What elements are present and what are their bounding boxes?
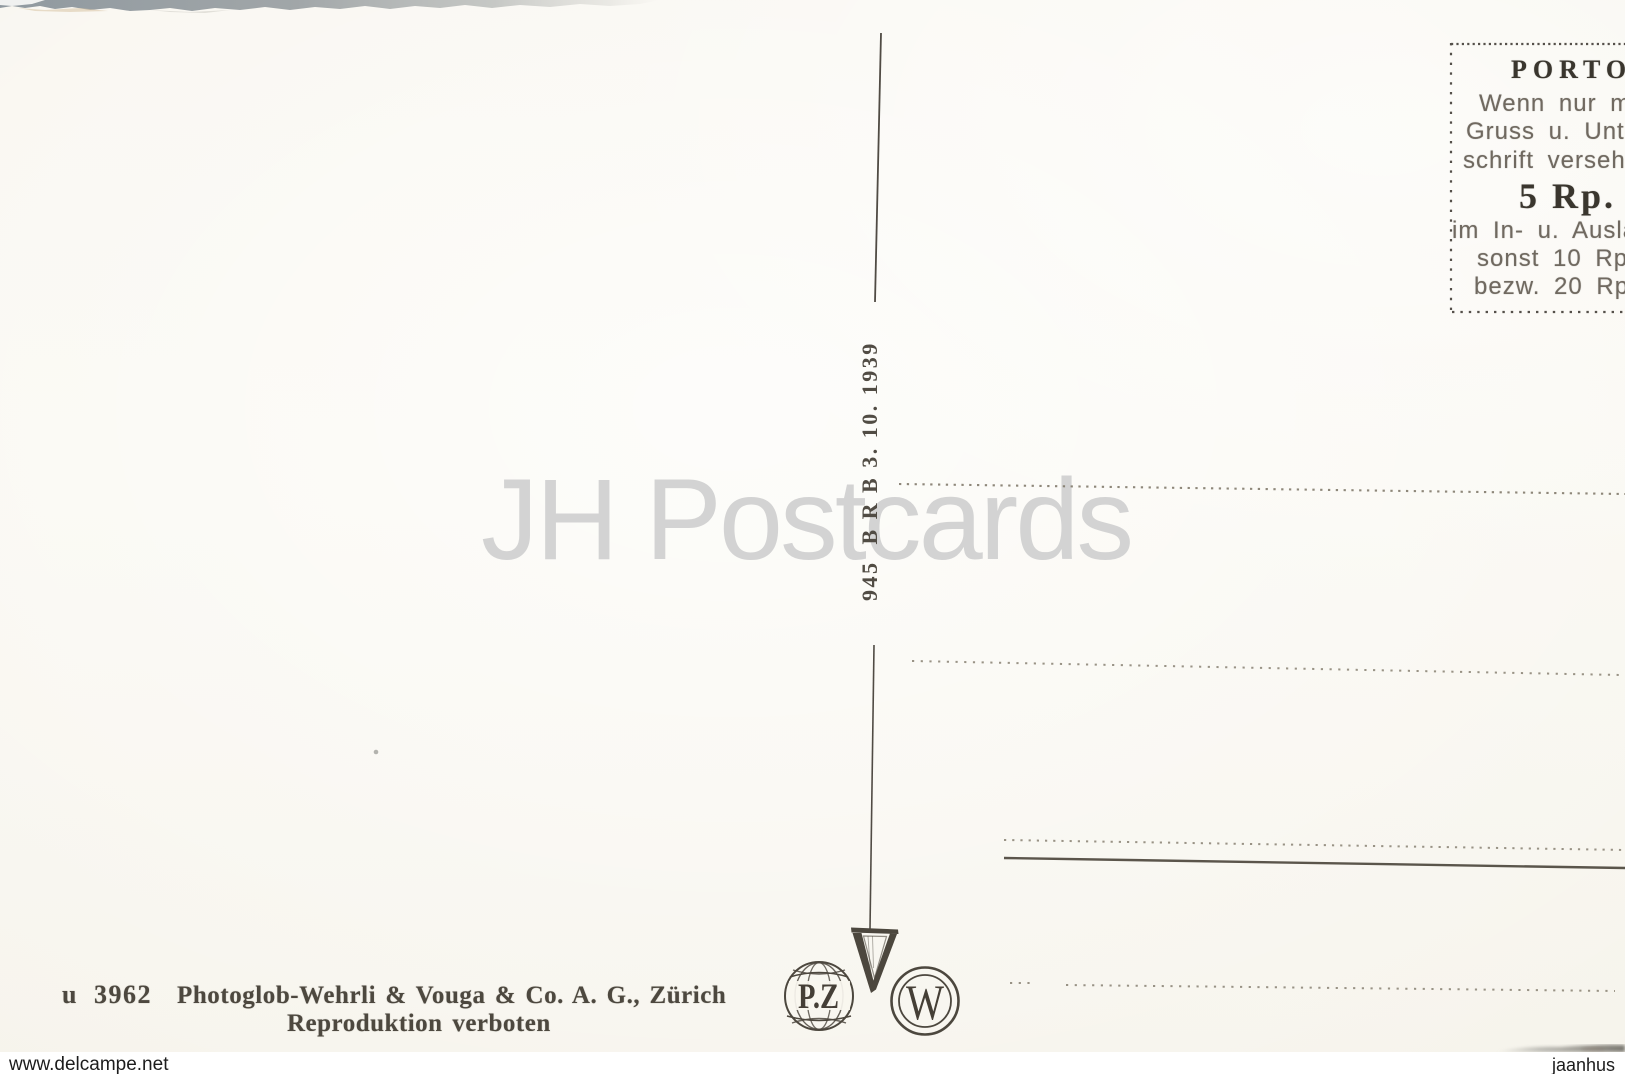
svg-text:P.Z: P.Z <box>798 976 839 1016</box>
svg-text:W: W <box>906 974 945 1030</box>
